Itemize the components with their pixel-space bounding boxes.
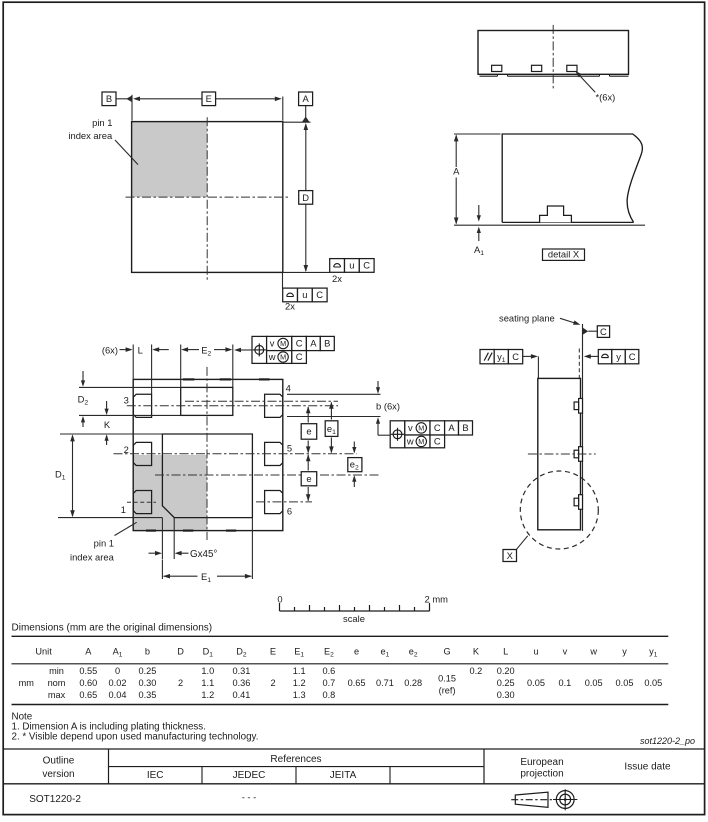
svg-text:v: v bbox=[270, 338, 275, 349]
svg-text:(6x): (6x) bbox=[102, 344, 118, 355]
svg-text:6: 6 bbox=[287, 506, 292, 517]
svg-text:A: A bbox=[85, 647, 92, 657]
svg-text:0.30: 0.30 bbox=[497, 690, 515, 700]
svg-text:Gx45°: Gx45° bbox=[190, 549, 217, 560]
svg-text:1.2: 1.2 bbox=[293, 678, 306, 688]
svg-text:b: b bbox=[145, 647, 150, 657]
svg-text:SOT1220-2: SOT1220-2 bbox=[29, 794, 81, 805]
svg-text:2 mm: 2 mm bbox=[425, 594, 449, 605]
svg-text:C: C bbox=[316, 289, 323, 300]
svg-text:0.04: 0.04 bbox=[109, 690, 127, 700]
svg-text:0.05: 0.05 bbox=[527, 678, 545, 688]
svg-text:min: min bbox=[49, 666, 64, 676]
svg-text:IEC: IEC bbox=[147, 770, 164, 781]
svg-text:seating plane: seating plane bbox=[499, 312, 555, 323]
svg-text:Outline: Outline bbox=[43, 756, 75, 767]
svg-text:0.20: 0.20 bbox=[497, 666, 515, 676]
svg-text:0.25: 0.25 bbox=[138, 666, 156, 676]
svg-text:2: 2 bbox=[124, 444, 129, 455]
svg-text:e: e bbox=[306, 473, 311, 484]
svg-text:M: M bbox=[280, 339, 286, 348]
svg-text:European: European bbox=[520, 757, 563, 768]
svg-text:0.28: 0.28 bbox=[404, 678, 422, 688]
svg-text:pin 1: pin 1 bbox=[92, 117, 112, 128]
svg-text:3: 3 bbox=[124, 395, 129, 406]
svg-text:0: 0 bbox=[277, 594, 282, 605]
svg-text:max: max bbox=[48, 690, 66, 700]
svg-text:index area: index area bbox=[68, 130, 113, 141]
svg-text:0.25: 0.25 bbox=[497, 678, 515, 688]
svg-text:u: u bbox=[302, 289, 307, 300]
svg-text:0.65: 0.65 bbox=[348, 678, 366, 688]
svg-text:1.1: 1.1 bbox=[293, 666, 306, 676]
svg-text:v: v bbox=[408, 422, 413, 433]
svg-text:1.3: 1.3 bbox=[293, 690, 306, 700]
svg-text:e: e bbox=[306, 426, 311, 437]
svg-text:A: A bbox=[453, 165, 460, 176]
svg-text:- - -: - - - bbox=[242, 792, 257, 803]
svg-text:C: C bbox=[434, 422, 441, 433]
svg-text:(ref): (ref) bbox=[439, 686, 456, 696]
svg-text:K: K bbox=[104, 419, 111, 430]
svg-text:2. * Visible depend upon used: 2. * Visible depend upon used manufactur… bbox=[12, 731, 259, 742]
svg-text:0.65: 0.65 bbox=[79, 690, 97, 700]
svg-text:E: E bbox=[270, 647, 276, 657]
svg-text:C: C bbox=[512, 351, 519, 362]
svg-text:mm: mm bbox=[19, 678, 35, 688]
svg-text:sot1220-2_po: sot1220-2_po bbox=[640, 736, 695, 746]
svg-text:5: 5 bbox=[287, 443, 292, 454]
svg-text:B: B bbox=[324, 338, 330, 349]
svg-text:A: A bbox=[310, 338, 317, 349]
svg-text:4: 4 bbox=[286, 383, 291, 394]
svg-text:2x: 2x bbox=[285, 301, 295, 312]
svg-text:2x: 2x bbox=[332, 273, 342, 284]
svg-text:w: w bbox=[589, 647, 597, 657]
svg-text:nom: nom bbox=[48, 678, 66, 688]
svg-text:References: References bbox=[270, 754, 321, 765]
svg-text:Issue date: Issue date bbox=[624, 762, 671, 773]
svg-text:L: L bbox=[503, 647, 508, 657]
svg-text:L: L bbox=[138, 344, 143, 355]
svg-text:w: w bbox=[406, 436, 414, 447]
svg-text:C: C bbox=[600, 326, 607, 337]
svg-text:X: X bbox=[507, 550, 514, 561]
svg-text:D: D bbox=[177, 647, 184, 657]
svg-text:0.41: 0.41 bbox=[232, 690, 250, 700]
svg-text:M: M bbox=[280, 353, 286, 362]
svg-text:0.35: 0.35 bbox=[138, 690, 156, 700]
svg-text:B: B bbox=[462, 422, 468, 433]
svg-text:0.05: 0.05 bbox=[644, 678, 662, 688]
svg-text:JEITA: JEITA bbox=[330, 770, 357, 781]
svg-text:0.2: 0.2 bbox=[470, 666, 483, 676]
svg-text:1.0: 1.0 bbox=[201, 666, 214, 676]
svg-text:projection: projection bbox=[520, 769, 563, 780]
svg-text:u: u bbox=[349, 260, 354, 271]
svg-text:B: B bbox=[106, 93, 112, 104]
svg-text:C: C bbox=[296, 351, 303, 362]
svg-text:w: w bbox=[268, 351, 276, 362]
svg-text:0.02: 0.02 bbox=[109, 678, 127, 688]
svg-text:JEDEC: JEDEC bbox=[233, 770, 266, 781]
svg-text:0.55: 0.55 bbox=[79, 666, 97, 676]
svg-text:0.7: 0.7 bbox=[323, 678, 336, 688]
svg-text:C: C bbox=[363, 260, 370, 271]
svg-text:0.8: 0.8 bbox=[323, 690, 336, 700]
svg-text:*(6x): *(6x) bbox=[596, 92, 616, 103]
svg-text:D: D bbox=[302, 192, 309, 203]
svg-text:pin 1: pin 1 bbox=[94, 538, 114, 549]
svg-text:0.1: 0.1 bbox=[559, 678, 572, 688]
svg-text:1.2: 1.2 bbox=[201, 690, 214, 700]
svg-text:0.05: 0.05 bbox=[585, 678, 603, 688]
svg-text:0.05: 0.05 bbox=[616, 678, 634, 688]
svg-text:A: A bbox=[302, 93, 309, 104]
svg-text:1: 1 bbox=[121, 504, 126, 515]
svg-text:M: M bbox=[418, 424, 424, 433]
svg-text:Unit: Unit bbox=[35, 647, 52, 657]
svg-text:C: C bbox=[434, 436, 441, 447]
svg-text:u: u bbox=[533, 647, 538, 657]
svg-text:v: v bbox=[563, 647, 568, 657]
svg-text:1.1: 1.1 bbox=[201, 678, 214, 688]
svg-text:0: 0 bbox=[115, 666, 120, 676]
svg-text:version: version bbox=[42, 769, 74, 780]
svg-text:C: C bbox=[296, 338, 303, 349]
svg-text:A: A bbox=[448, 422, 455, 433]
svg-text:0.15: 0.15 bbox=[438, 674, 456, 684]
svg-text:C: C bbox=[629, 351, 636, 362]
svg-text:0.71: 0.71 bbox=[376, 678, 394, 688]
svg-text:G: G bbox=[444, 647, 451, 657]
svg-text:2: 2 bbox=[270, 678, 275, 688]
svg-text:y: y bbox=[622, 647, 627, 657]
svg-text:0.30: 0.30 bbox=[138, 678, 156, 688]
svg-text:index area: index area bbox=[70, 552, 115, 563]
svg-text:scale: scale bbox=[343, 613, 365, 624]
svg-text:b (6x): b (6x) bbox=[376, 400, 400, 411]
svg-text:detail X: detail X bbox=[548, 249, 580, 260]
svg-text:2: 2 bbox=[178, 678, 183, 688]
svg-text:E: E bbox=[206, 93, 212, 104]
svg-text:M: M bbox=[418, 437, 424, 446]
svg-text:K: K bbox=[473, 647, 480, 657]
svg-text:e: e bbox=[354, 647, 359, 657]
svg-text:y: y bbox=[616, 351, 621, 362]
svg-text:0.31: 0.31 bbox=[232, 666, 250, 676]
svg-text:0.36: 0.36 bbox=[232, 678, 250, 688]
svg-text:Dimensions (mm are the origina: Dimensions (mm are the original dimensio… bbox=[12, 622, 213, 633]
svg-text:0.60: 0.60 bbox=[79, 678, 97, 688]
svg-text:0.6: 0.6 bbox=[323, 666, 336, 676]
